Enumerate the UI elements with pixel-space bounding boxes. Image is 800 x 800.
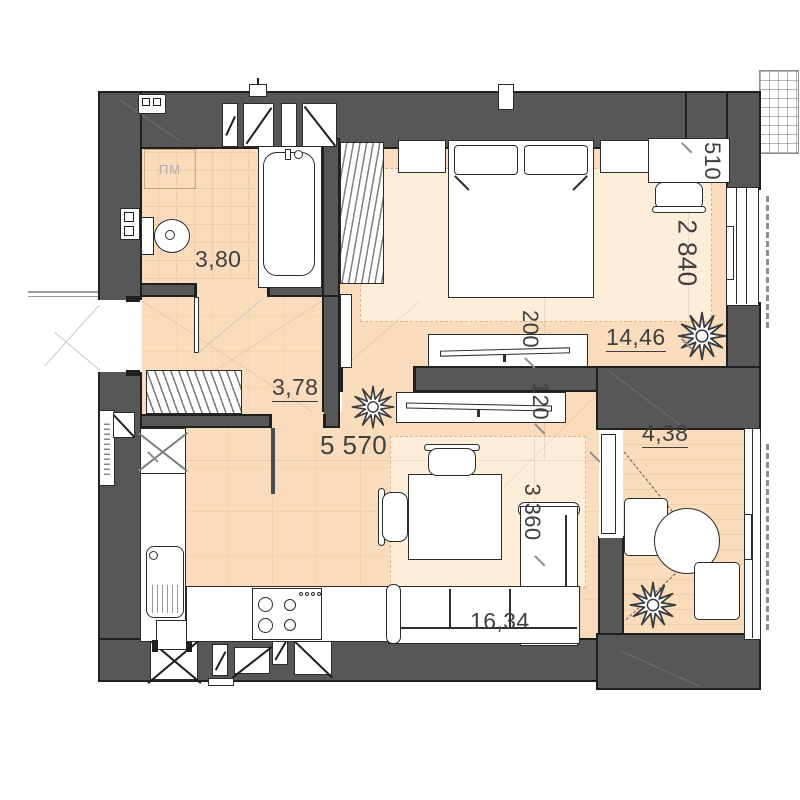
door-jamb: [194, 283, 197, 297]
desk-chair-back: [652, 206, 706, 213]
door-jamb: [269, 414, 272, 428]
vent-shaft: [243, 103, 274, 147]
entrance-swing-line: [55, 332, 101, 371]
stove-knob: [311, 592, 315, 596]
door-jamb: [413, 366, 416, 392]
plant-icon: [628, 580, 678, 630]
balcony-door-leaf: [601, 434, 616, 534]
wall-notch: [249, 84, 267, 97]
sofa-cushion-line: [449, 589, 451, 627]
neighbor-wall-line: [28, 291, 100, 293]
utility-box: [138, 94, 166, 114]
bedroom-door-leaf: [340, 294, 352, 368]
room-area-balcony: 4,38: [642, 420, 688, 447]
tv-stand-stub: [477, 410, 480, 417]
dining-chair: [428, 448, 476, 476]
electrical-cell: [124, 212, 134, 222]
wall-balcony-left: [598, 536, 624, 642]
wall-tab: [208, 678, 234, 686]
exterior-dashed-rail: [766, 444, 769, 630]
entrance-opening: [98, 300, 142, 372]
wall-right-mid: [726, 302, 761, 368]
kitchen-door-leaf: [271, 428, 275, 494]
stove: [252, 588, 322, 640]
vent-shaft: [234, 647, 270, 674]
entrance-swing-line: [44, 305, 100, 367]
stove-knob: [299, 592, 303, 596]
burner: [284, 599, 296, 611]
sink-faucet: [149, 551, 158, 560]
dim-desk-depth: 510: [699, 142, 725, 180]
toilet-tank: [141, 217, 154, 255]
washing-machine-zone: ПМ: [144, 149, 196, 189]
stove-knob: [305, 592, 309, 596]
wall-left: [98, 91, 142, 682]
exterior-ac-basket: [759, 70, 799, 154]
vent-shaft: [302, 103, 337, 147]
window-frame-line: [736, 188, 737, 304]
vent-shaft: [222, 103, 238, 147]
washing-machine-label: ПМ: [159, 162, 181, 177]
door-jamb: [126, 296, 140, 302]
coat-rack: [146, 370, 242, 414]
pillow: [454, 145, 518, 175]
sink-pedestal: [156, 620, 188, 650]
pedestal-stub: [152, 640, 158, 652]
wall-bathroom-bedroom: [322, 138, 340, 297]
toilet-drain: [165, 230, 175, 240]
neighbor-wall-line: [28, 296, 100, 297]
door-jamb: [323, 414, 326, 428]
vent-shaft: [281, 103, 297, 147]
kitchen-door-opening: [272, 412, 324, 430]
door-jamb: [126, 370, 140, 376]
dim-living-depth: 3 360: [519, 483, 545, 540]
electrical-box: [120, 208, 140, 240]
window-frame-line: [746, 188, 747, 304]
plant-icon: [676, 310, 728, 362]
bathroom-door-leaf: [194, 297, 199, 353]
wall-balcony-bottom: [596, 633, 761, 690]
burner: [284, 619, 296, 631]
burner: [258, 597, 273, 612]
dining-table: [408, 474, 502, 560]
electrical-cell: [124, 226, 134, 236]
bathtub-faucet: [294, 150, 303, 159]
vent-shaft: [294, 640, 332, 675]
wall-hall-kitchen: [140, 414, 272, 428]
dim-living-width: 5 570: [320, 430, 387, 461]
tv-stand-stub: [503, 355, 506, 362]
utility-cell: [153, 98, 161, 106]
window-frame-line: [752, 429, 753, 638]
room-area-hallway: 3,78: [272, 374, 318, 401]
balcony-chair: [694, 562, 740, 620]
utility-cell: [142, 98, 150, 106]
dim-bedroom-tv-depth: 200: [517, 310, 543, 348]
exterior-dashed-rail: [766, 196, 769, 328]
wall-tick: [257, 78, 259, 84]
nightstand-left: [398, 140, 446, 173]
tag-diagonal-box: [113, 412, 135, 438]
dim-living-tv-depth: 120: [527, 382, 553, 420]
dining-chair: [382, 492, 408, 542]
room-area-bathroom: 3,80: [195, 246, 241, 273]
vent-shaft: [212, 644, 228, 676]
bathtub-inner: [263, 152, 315, 276]
bathtub: [258, 146, 322, 288]
sink-drainboard: [152, 585, 178, 613]
pillow: [524, 145, 588, 175]
floor-plan: ПМ: [0, 0, 800, 800]
wardrobe: [340, 142, 384, 284]
door-jamb: [340, 366, 343, 392]
stove-knob: [317, 592, 321, 596]
wall-stub: [498, 84, 514, 110]
bathtub-tap: [285, 149, 291, 160]
plant-icon: [350, 384, 396, 430]
wall-hall-bedroom: [322, 295, 340, 428]
tag-micro-text: [104, 423, 110, 475]
sofa-armrest: [386, 584, 401, 644]
room-area-kitchen-living: 16,34: [470, 608, 530, 635]
dim-bedroom-depth: 2 840: [672, 219, 703, 286]
bedroom-window-sash: [726, 226, 734, 280]
room-area-bedroom: 14,46: [606, 324, 666, 351]
balcony-window-sash: [744, 514, 752, 560]
wall-right-upper: [726, 91, 761, 190]
burner: [258, 618, 273, 633]
